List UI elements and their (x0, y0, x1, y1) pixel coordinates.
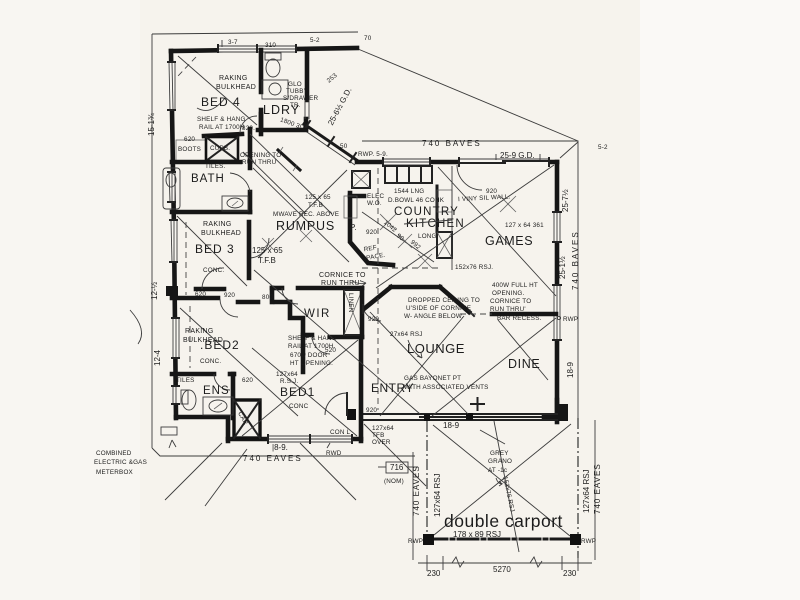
svg-text:|8-9.: |8-9. (272, 443, 288, 452)
svg-text:RAKING: RAKING (203, 221, 232, 228)
svg-text:820.: 820. (242, 125, 255, 132)
svg-text:METERBOX: METERBOX (96, 469, 134, 476)
svg-text:BED 3: BED 3 (195, 242, 235, 256)
svg-text:CONC.: CONC. (203, 267, 224, 274)
svg-text:TFB: TFB (372, 432, 385, 439)
svg-text:OVER: OVER (372, 439, 391, 446)
svg-text:127x64 RSJ: 127x64 RSJ (433, 473, 442, 517)
svg-text:127 x 64 361: 127 x 64 361 (505, 222, 544, 229)
svg-text:25-7½: 25-7½ (561, 189, 570, 212)
svg-text:AT -1c: AT -1c (488, 467, 507, 474)
svg-text:T.F.B: T.F.B (308, 202, 323, 209)
svg-text:RWP: RWP (581, 538, 596, 545)
svg-text:W- ANGLE BELOW.: W- ANGLE BELOW. (404, 313, 464, 320)
svg-text:CORNICE TO: CORNICE TO (319, 272, 366, 279)
svg-text:D.BOWL 46 CONK: D.BOWL 46 CONK (388, 197, 445, 204)
svg-text:(NOM): (NOM) (384, 478, 404, 485)
svg-text:230: 230 (427, 569, 441, 578)
svg-text:CONC: CONC (289, 403, 309, 410)
svg-text:920: 920 (366, 229, 377, 236)
svg-text:RAIL AT 1700H: RAIL AT 1700H (199, 124, 245, 131)
svg-text:RWP. 5-9.: RWP. 5-9. (358, 151, 388, 158)
svg-text:920: 920 (366, 407, 377, 414)
svg-text:DROPPED CEILING TO: DROPPED CEILING TO (408, 297, 480, 304)
svg-text:12-4: 12-4 (153, 349, 162, 366)
svg-text:920: 920 (368, 316, 379, 323)
svg-text:152x76 RSJ.: 152x76 RSJ. (455, 264, 493, 271)
svg-text:GAS BAYONET PT: GAS BAYONET PT (404, 375, 461, 382)
svg-text:RUN THRU’: RUN THRU’ (321, 280, 362, 287)
svg-text:125 x 65: 125 x 65 (252, 246, 283, 255)
svg-text:GRANO: GRANO (488, 458, 512, 465)
svg-text:LONG: LONG (418, 233, 437, 240)
svg-text:U'SIDE OF CORNICE: U'SIDE OF CORNICE (406, 305, 471, 312)
svg-text:520: 520 (325, 347, 336, 354)
svg-text:DINE: DINE (508, 357, 540, 371)
svg-text:GREY: GREY (490, 450, 509, 457)
svg-text:COMBINED: COMBINED (96, 450, 132, 457)
svg-text:LOUNGE: LOUNGE (407, 341, 465, 356)
svg-text:S/DRAWER: S/DRAWER (283, 95, 319, 102)
svg-text:400W FULL HT: 400W FULL HT (492, 282, 538, 289)
svg-text:BULKHEAD: BULKHEAD (183, 337, 223, 344)
svg-text:27x64 RSJ: 27x64 RSJ (390, 331, 423, 338)
svg-text:BED 4: BED 4 (201, 95, 241, 109)
svg-text:RAKING: RAKING (219, 75, 248, 82)
svg-text:CONC.: CONC. (200, 358, 221, 365)
svg-text:127x64: 127x64 (276, 371, 298, 378)
svg-text:TILES.: TILES. (205, 163, 225, 170)
svg-text:CON L: CON L (330, 429, 351, 436)
svg-text:COUNTRY: COUNTRY (394, 206, 459, 218)
svg-text:15-1¾: 15-1¾ (147, 113, 156, 136)
svg-text:BED1: BED1 (280, 385, 315, 399)
svg-text:ELECTRIC &GAS: ELECTRIC &GAS (94, 459, 147, 466)
svg-text:T.F.B: T.F.B (258, 256, 276, 265)
svg-text:BATH: BATH (191, 173, 225, 185)
svg-text:BULKHEAD: BULKHEAD (201, 230, 241, 237)
svg-text:230: 230 (563, 569, 577, 578)
svg-text:ENS: ENS (203, 385, 230, 397)
svg-text:70: 70 (364, 35, 372, 42)
svg-text:double carport: double carport (444, 511, 563, 531)
svg-text:BULKHEAD: BULKHEAD (216, 84, 256, 91)
svg-text:127x64 RSJ: 127x64 RSJ (582, 469, 591, 513)
svg-text:KITCHEN: KITCHEN (406, 218, 465, 230)
svg-text:740 EAVES: 740 EAVES (412, 465, 421, 516)
svg-text:RUN THRU': RUN THRU' (490, 306, 526, 313)
svg-text:SHELF & HANG: SHELF & HANG (197, 116, 246, 123)
svg-text:740 EAVES: 740 EAVES (593, 463, 602, 514)
svg-text:716: 716 (390, 463, 404, 472)
svg-text:670w DOOR: 670w DOOR (290, 352, 328, 359)
svg-text:HT OPENING.: HT OPENING. (290, 360, 333, 367)
svg-text:GAMES: GAMES (485, 234, 533, 248)
svg-text:RAKING: RAKING (185, 328, 214, 335)
svg-text:TR.: TR. (290, 102, 301, 109)
svg-text:310: 310 (265, 42, 276, 49)
svg-text:125 x 65: 125 x 65 (305, 194, 331, 201)
svg-text:800: 800 (262, 294, 273, 301)
svg-text:620: 620 (242, 377, 253, 384)
svg-text:ELEC: ELEC (367, 193, 385, 200)
svg-text:BAR RECESS.: BAR RECESS. (497, 315, 542, 322)
svg-text:920: 920 (224, 292, 235, 299)
svg-text:WITH ASSOCIATED VENTS: WITH ASSOCIATED VENTS (404, 384, 489, 391)
svg-text:OPENING.: OPENING. (492, 290, 524, 297)
svg-text:RWP: RWP (563, 316, 578, 323)
svg-text:25-9 G.D.: 25-9 G.D. (500, 151, 535, 160)
svg-text:RUMPUS: RUMPUS (276, 219, 335, 233)
svg-text:5270: 5270 (493, 565, 511, 574)
svg-text:TUBBY: TUBBY (286, 88, 309, 95)
svg-text:RWP: RWP (408, 538, 423, 545)
svg-text:12-½: 12-½ (150, 281, 159, 300)
svg-text:3-7: 3-7 (228, 39, 238, 46)
svg-text:25-1½: 25-1½ (558, 256, 567, 279)
svg-text:GLO: GLO (288, 81, 302, 88)
svg-text:1544 LNG: 1544 LNG (394, 188, 424, 195)
svg-text:5-2: 5-2 (310, 37, 320, 44)
svg-text:18-9: 18-9 (566, 361, 575, 378)
svg-text:RWD: RWD (326, 450, 342, 457)
svg-text:P.: P. (350, 223, 357, 232)
svg-text:BOOTS: BOOTS (178, 146, 201, 153)
svg-text:740 BAVES: 740 BAVES (571, 230, 580, 290)
svg-text:CUPB.: CUPB. (210, 145, 230, 152)
svg-text:50: 50 (340, 143, 348, 150)
svg-text:178 x 89 RSJ: 178 x 89 RSJ (453, 530, 501, 539)
svg-text:620: 620 (184, 136, 195, 143)
svg-text:18-9: 18-9 (443, 421, 460, 430)
svg-text:CORNICE TO: CORNICE TO (490, 298, 531, 305)
svg-text:RUN THRU: RUN THRU (242, 159, 277, 166)
svg-text:TILES: TILES (176, 377, 195, 384)
svg-text:W.O.: W.O. (367, 200, 382, 207)
svg-text:MWAVE REC. ABOVE: MWAVE REC. ABOVE (273, 211, 339, 218)
svg-text:R.S.J.: R.S.J. (280, 378, 298, 385)
svg-text:WIR: WIR (304, 308, 331, 320)
svg-text:LINEN: LINEN (347, 293, 354, 313)
svg-text:OPENING TO: OPENING TO (240, 152, 281, 159)
svg-text:5-2: 5-2 (598, 144, 608, 151)
svg-text:620: 620 (195, 291, 206, 298)
svg-text:740 EAVES: 740 EAVES (243, 454, 303, 463)
svg-text:SHELF & HANG: SHELF & HANG (288, 335, 337, 342)
svg-text:127x64: 127x64 (372, 425, 394, 432)
svg-text:740 BAVES: 740 BAVES (422, 139, 482, 148)
